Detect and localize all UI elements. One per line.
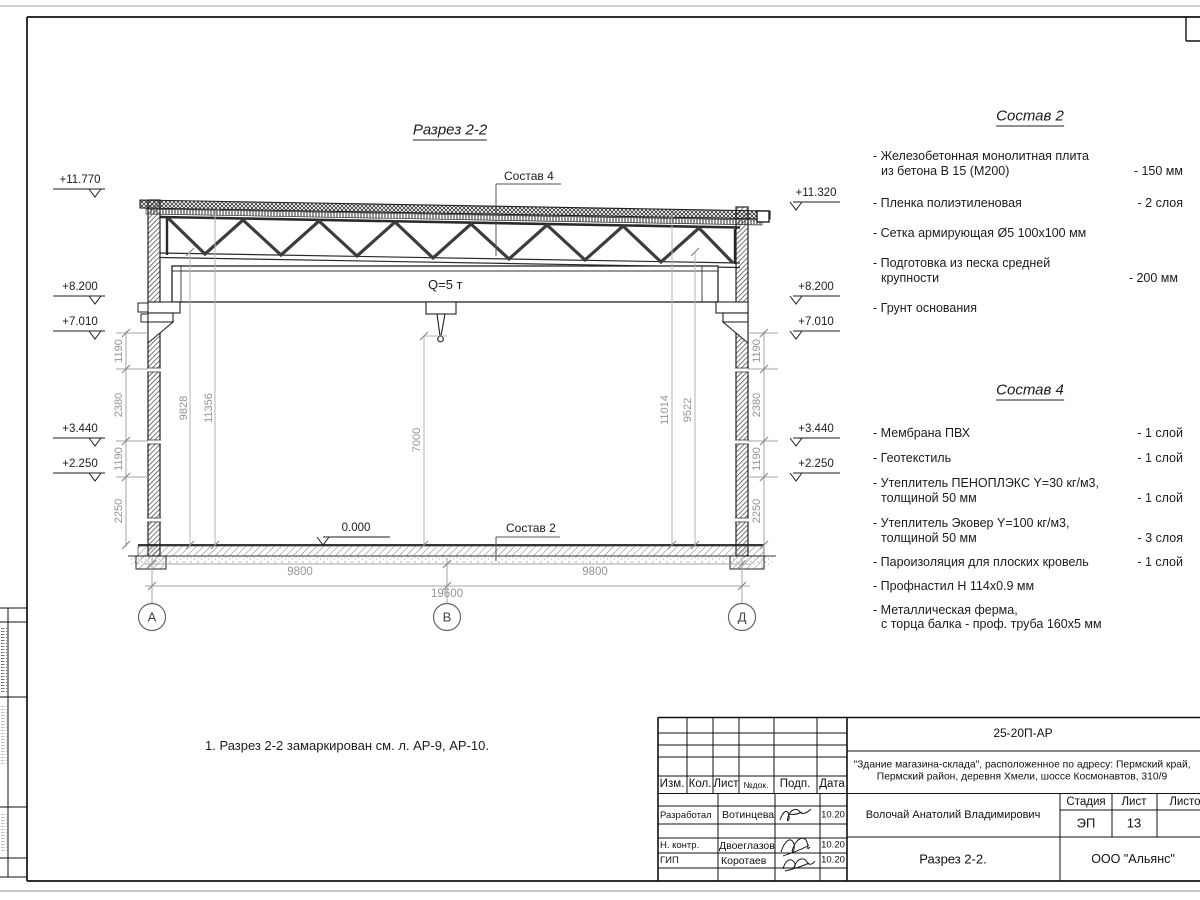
row-nkontr-name: Двоеглазов <box>719 840 775 852</box>
elevation-right-8200: +8.200 <box>798 281 834 293</box>
dim-interior-11014: 11014 <box>659 395 671 425</box>
dim-total-19600: 19600 <box>431 588 463 600</box>
dim-interior-7000: 7000 <box>411 428 423 452</box>
sheet-frame <box>27 17 1200 881</box>
dim-left-1190a: 1190 <box>113 339 125 363</box>
wall-panel-joints <box>147 368 749 522</box>
row-razrabotal-role: Разработал <box>660 810 712 821</box>
doc-code: 25-20П-АР <box>993 726 1052 740</box>
dim-interior-11356: 11356 <box>203 393 215 423</box>
drawing-title: Разрез 2-2 <box>413 122 487 141</box>
col-ndok: №док. <box>744 780 769 790</box>
sostav4-item7-line2: с торца балка - проф. труба 160х5 мм <box>881 617 1102 631</box>
dim-span-left-9800: 9800 <box>287 566 313 578</box>
sostav2-item4-line1: - Подготовка из песка средней <box>873 256 1050 270</box>
dim-left-2380: 2380 <box>113 393 125 417</box>
elevation-right-3440: +3.440 <box>798 423 834 435</box>
sostav2-item4-value: - 200 мм <box>1090 271 1178 285</box>
sheet-number: 13 <box>1127 816 1141 831</box>
walls <box>138 200 749 556</box>
row-razrabotal-date: 10.20 <box>821 810 845 821</box>
elevation-right-11320: +11.320 <box>795 187 836 199</box>
row-nkontr-date: 10.20 <box>821 840 845 851</box>
sostav4-item3-value: - 1 слой <box>1095 491 1183 505</box>
elevation-left-3440: +3.440 <box>62 423 98 435</box>
floor-slab <box>128 545 776 569</box>
sostav4-item1-line1: - Мембрана ПВХ <box>873 426 970 440</box>
sostav4-item5-value: - 1 слой <box>1095 555 1183 569</box>
stage-value: ЭП <box>1077 816 1096 831</box>
sostav2-ref-label: Состав 2 <box>506 521 556 535</box>
row-razrabotal-name: Вотинцева <box>722 809 774 821</box>
sostav4-item5-line1: - Пароизоляция для плоских кровель <box>873 555 1089 569</box>
elevation-left-7010: +7.010 <box>62 316 98 328</box>
sostav2-item5-line1: - Грунт основания <box>873 301 977 315</box>
signature-gip <box>783 859 815 871</box>
col-list: Лист <box>714 778 739 790</box>
sostav4-item3-line2: толщиной 50 мм <box>881 491 977 505</box>
dim-left-1190b: 1190 <box>113 447 125 471</box>
sostav2-item1-value: - 150 мм <box>1095 164 1183 178</box>
elevation-right-7010: +7.010 <box>798 316 834 328</box>
sostav4-item1-value: - 1 слой <box>1095 426 1183 440</box>
dim-interior-9522: 9522 <box>682 398 694 422</box>
row-nkontr-role: Н. контр. <box>660 840 699 851</box>
sostav4-item4-line2: толщиной 50 мм <box>881 531 977 545</box>
elevation-marks-left <box>53 189 105 481</box>
sheet-note: 1. Разрез 2-2 замаркирован см. л. АР-9, … <box>205 738 489 753</box>
axis-bubble-a: А <box>148 610 157 625</box>
col-data: Дата <box>819 778 844 790</box>
dim-right-1190a: 1190 <box>751 339 763 363</box>
sostav2-title: Состав 2 <box>996 108 1064 127</box>
dim-right-1190b: 1190 <box>751 447 763 471</box>
sostav4-item3-line1: - Утеплитель ПЕНОПЛЭКС Y=30 кг/м3, <box>873 476 1099 490</box>
dim-left-2250: 2250 <box>113 499 125 523</box>
dim-right-2380: 2380 <box>751 393 763 417</box>
sostav2-item4-line2: крупности <box>881 271 939 285</box>
zero-level-mark <box>317 537 390 545</box>
axis-bubble-v: В <box>443 610 452 625</box>
sostav4-item4-value: - 3 слоя <box>1095 531 1183 545</box>
row-gip-date: 10.20 <box>821 855 845 866</box>
sheet-name: Разрез 2-2. <box>919 852 986 867</box>
row-gip-role: ГИП <box>660 855 679 866</box>
sheet-label: Лист <box>1122 796 1147 808</box>
crane-capacity-label: Q=5 т <box>428 277 463 292</box>
sostav2-item1-line2: из бетона В 15 (М200) <box>881 164 1009 178</box>
sostav4-item4-line1: - Утеплитель Эковер Y=100 кг/м3, <box>873 516 1069 530</box>
elevation-marks-right <box>790 202 840 481</box>
zero-mark-label: 0.000 <box>342 522 371 534</box>
elevation-left-11770: +11.770 <box>59 174 100 186</box>
signatures <box>780 809 815 871</box>
axis-bubble-d: Д <box>738 610 747 625</box>
elevation-left-8200: +8.200 <box>62 281 98 293</box>
dim-interior-9828: 9828 <box>178 396 190 420</box>
col-kol: Кол. <box>689 778 712 790</box>
sostav4-title: Состав 4 <box>996 382 1064 401</box>
sostav2-item3-line1: - Сетка армирующая Ø5 100х100 мм <box>873 226 1086 240</box>
sostav2-item2-line1: - Пленка полиэтиленовая <box>873 196 1022 210</box>
organization-name: ООО "Альянс" <box>1091 852 1175 866</box>
drawing-sheet: Разрез 2-2 +11.770 +8.200 +7.010 +3.440 … <box>0 0 1200 900</box>
sostav4-item2-line1: - Геотекстиль <box>873 451 951 465</box>
stage-label: Стадия <box>1066 796 1105 808</box>
signature-votintseva <box>780 809 811 821</box>
col-podp: Подп. <box>780 778 811 790</box>
roof-assembly <box>140 200 770 228</box>
elevation-left-2250: +2.250 <box>62 458 98 470</box>
sheets-label: Листов <box>1169 796 1200 808</box>
author-name: Волочай Анатолий Владимирович <box>866 809 1041 821</box>
sostav4-ref-label: Состав 4 <box>504 169 554 183</box>
sostav2-item1-line1: - Железобетонная монолитная плита <box>873 149 1089 163</box>
dim-span-right-9800: 9800 <box>582 566 608 578</box>
sostav4-item2-value: - 1 слой <box>1095 451 1183 465</box>
sostav4-item6-line1: - Профнастил Н 114х0.9 мм <box>873 579 1034 593</box>
sostav4-item7-line1: - Металлическая ферма, <box>873 603 1018 617</box>
sostav2-item2-value: - 2 слоя <box>1095 196 1183 210</box>
col-izm: Изм. <box>660 778 685 790</box>
elevation-marks <box>53 189 840 545</box>
project-address-line2: Пермский район, деревня Хмели, шоссе Кос… <box>877 772 1167 783</box>
frame-left-column <box>0 608 27 877</box>
row-gip-name: Коротаев <box>721 855 766 867</box>
elevation-right-2250: +2.250 <box>798 458 834 470</box>
dim-right-2250: 2250 <box>751 499 763 523</box>
project-address-line1: "Здание магазина-склада", расположенное … <box>853 760 1190 771</box>
